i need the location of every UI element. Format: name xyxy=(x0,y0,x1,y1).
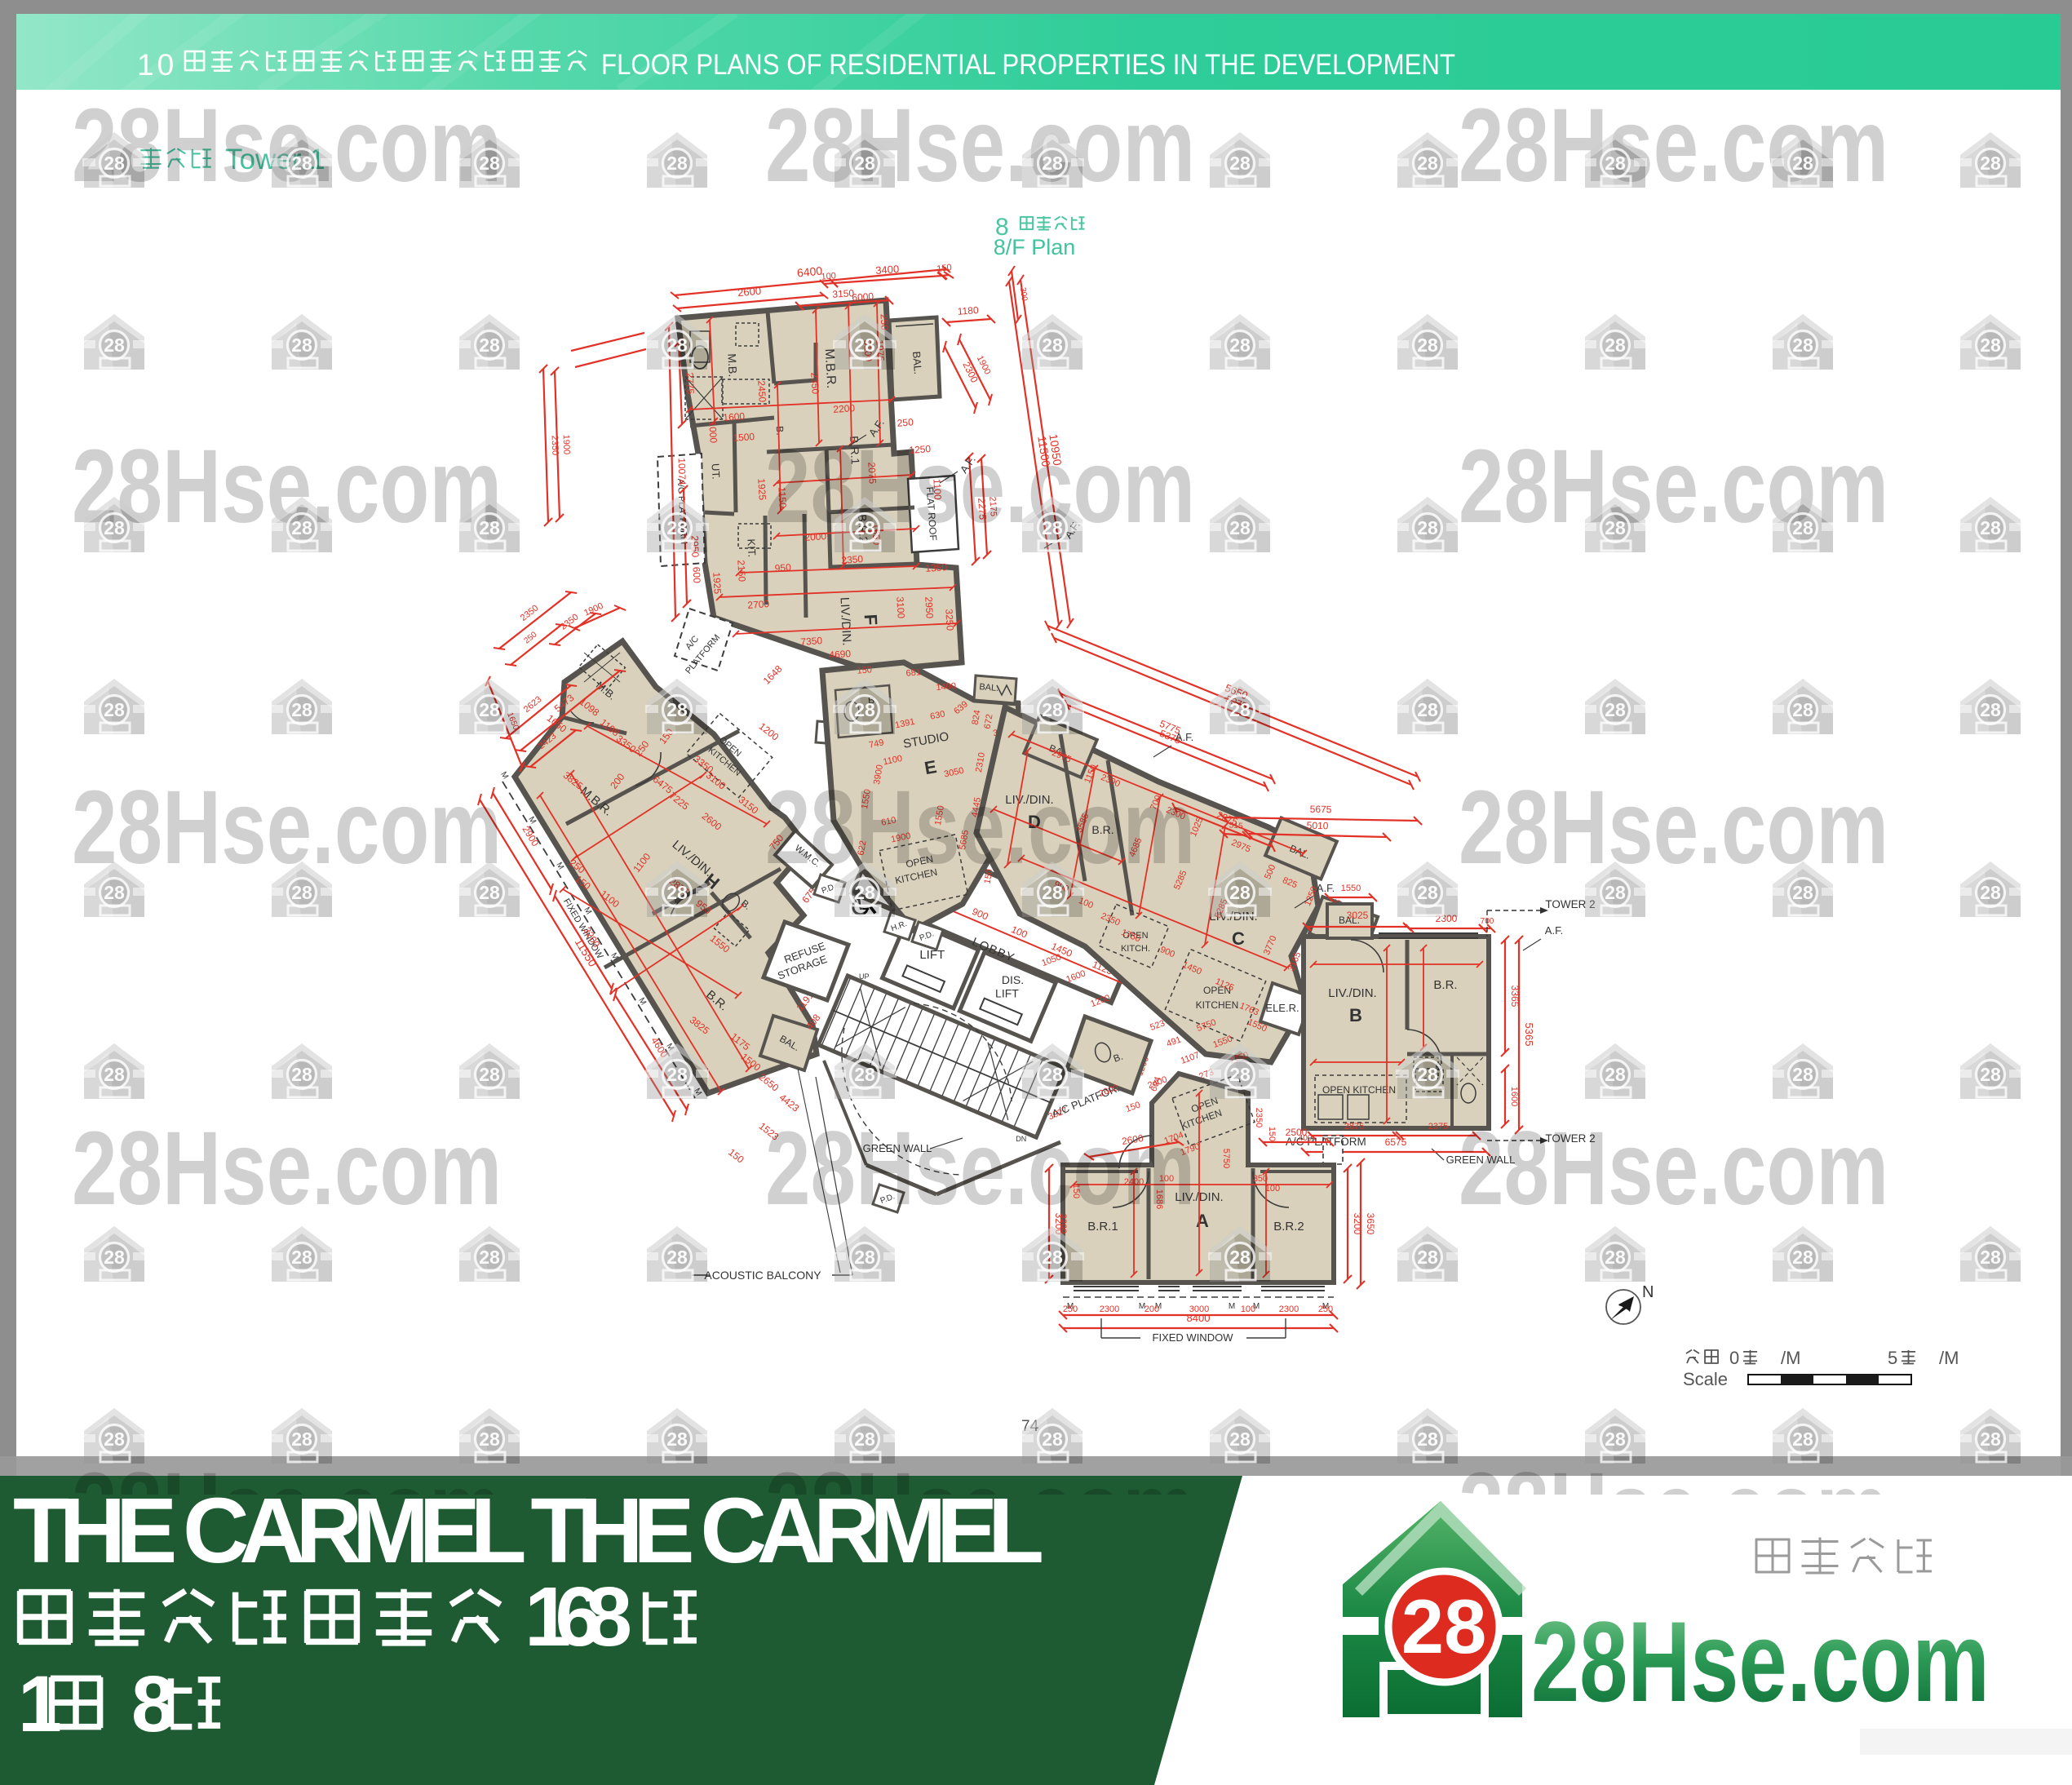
svg-text:28: 28 xyxy=(1401,1583,1487,1669)
svg-text:28Hse.com: 28Hse.com xyxy=(72,1110,502,1227)
svg-text:28Hse.com: 28Hse.com xyxy=(765,87,1195,204)
svg-text:28Hse.com: 28Hse.com xyxy=(72,769,502,886)
svg-text:28Hse.com: 28Hse.com xyxy=(765,428,1195,545)
svg-text:28Hse.com: 28Hse.com xyxy=(1459,769,1888,886)
svg-text:168: 168 xyxy=(525,1570,632,1663)
svg-text:28Hse.com: 28Hse.com xyxy=(765,769,1195,886)
svg-text:28Hse.com: 28Hse.com xyxy=(765,1110,1195,1227)
svg-text:28Hse.com: 28Hse.com xyxy=(1459,1110,1888,1227)
svg-text:28Hse.com: 28Hse.com xyxy=(1531,1598,1990,1726)
svg-text:28Hse.com: 28Hse.com xyxy=(765,1451,1195,1495)
